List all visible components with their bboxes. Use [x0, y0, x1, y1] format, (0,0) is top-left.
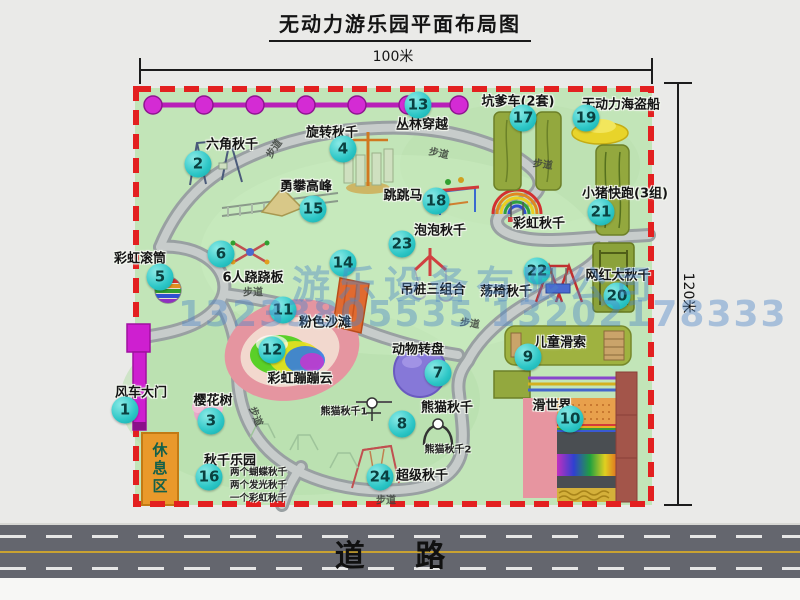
road: 道 路	[0, 523, 800, 580]
big-swing-pad	[593, 243, 634, 312]
kids-zipline	[505, 326, 631, 365]
dimension-height-label: 120米	[679, 273, 699, 314]
rest-area-label: 休息区	[150, 442, 171, 496]
park-plan-image: 无动力游乐园平面布局图	[0, 0, 800, 600]
dimension-width-label: 100米	[373, 46, 414, 66]
page-title: 无动力游乐园平面布局图	[269, 8, 531, 42]
pig-run-track	[596, 145, 629, 235]
below-road-strip	[0, 578, 800, 600]
animal-carousel-icon	[394, 345, 446, 397]
road-label: 道 路	[335, 531, 465, 575]
